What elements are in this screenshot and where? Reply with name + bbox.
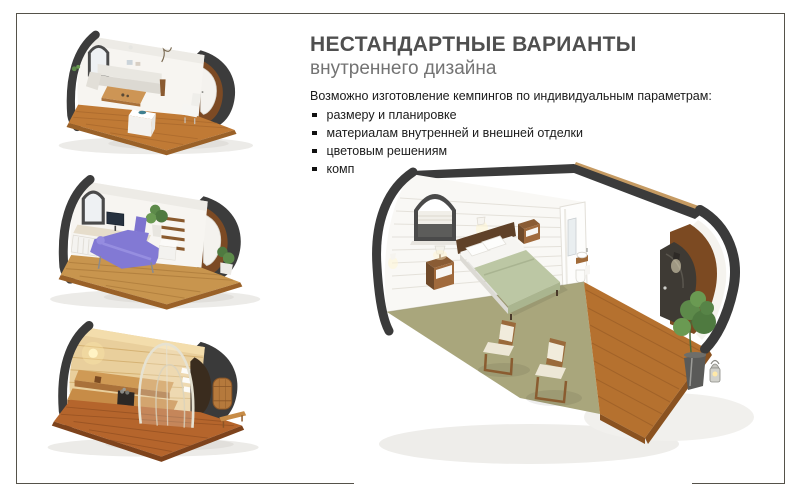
arched-window (82, 190, 105, 224)
intro-text: Возможно изготовление кемпингов по индив… (310, 89, 712, 103)
dining-pod-render (34, 26, 270, 162)
square-bullet-icon (312, 149, 317, 154)
page-title: НЕСТАНДАРТНЫЕ ВАРИАНТЫ (310, 33, 637, 57)
office-pod-render (27, 170, 275, 317)
dining-pod-figure (34, 26, 270, 162)
bullet-item: размеру и планировке (312, 106, 583, 124)
bullet-item-label: цветовым решениям (327, 144, 448, 158)
bullet-item-label: материалам внутренней и внешней отделки (327, 126, 584, 140)
office-pod-figure (27, 170, 275, 317)
barrel (213, 378, 232, 409)
bullet-item: цветовым решениям (312, 142, 583, 160)
sauna-pod-figure (27, 315, 271, 466)
square-bullet-icon (312, 167, 317, 172)
bedroom-pod-render (354, 162, 764, 482)
bullet-item-label: размеру и планировке (327, 108, 457, 122)
lantern (710, 361, 720, 383)
bullet-item: материалам внутренней и внешней отделки (312, 124, 583, 142)
page-subtitle: внутреннего дизайна (310, 58, 496, 80)
square-bullet-icon (312, 113, 317, 118)
sauna-pod-render (27, 315, 271, 466)
kitchen-island (128, 110, 156, 137)
presentation-slide: НЕСТАНДАРТНЫЕ ВАРИАНТЫ внутреннего дизай… (0, 0, 800, 500)
white-cabinet (158, 239, 178, 260)
square-bullet-icon (312, 131, 317, 136)
bedroom-pod-figure (354, 162, 692, 490)
